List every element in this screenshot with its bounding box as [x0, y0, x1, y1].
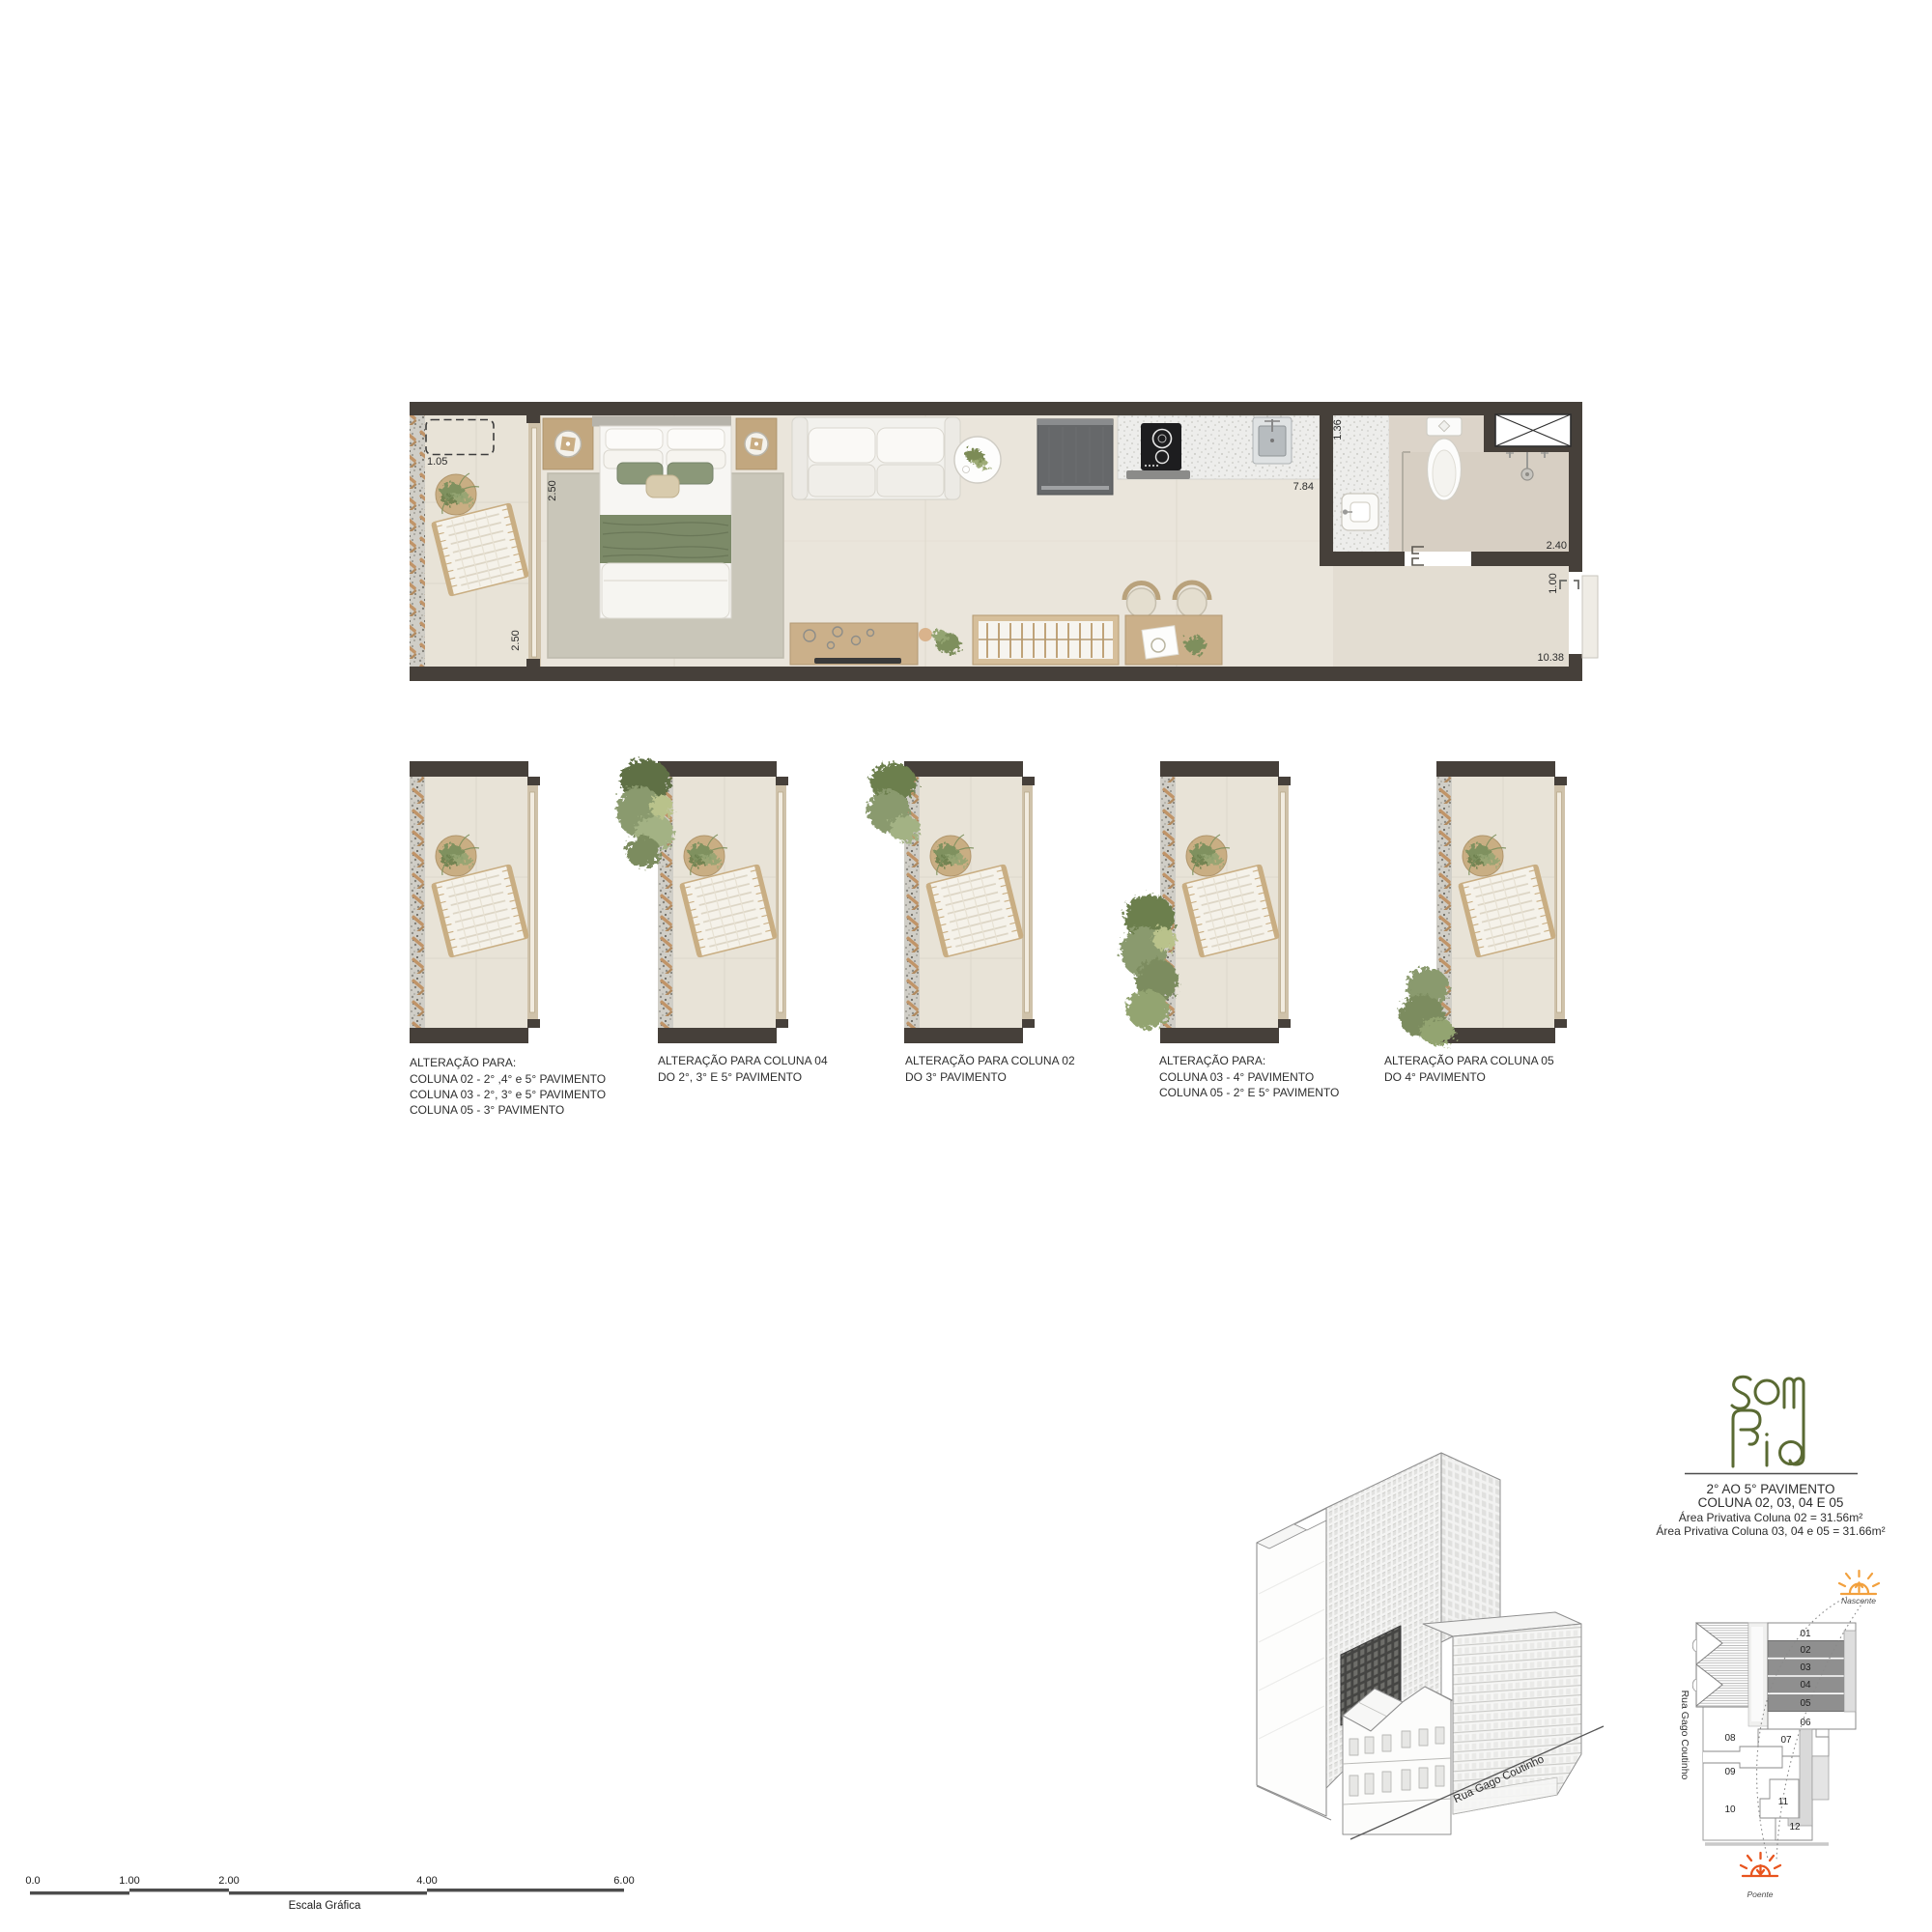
svg-text:COLUNA 05 - 2° E 5° PAVIMENTO: COLUNA 05 - 2° E 5° PAVIMENTO — [1159, 1086, 1339, 1099]
svg-text:7.84: 7.84 — [1293, 481, 1314, 493]
svg-text:1.36: 1.36 — [1332, 419, 1344, 440]
svg-text:2.40: 2.40 — [1547, 540, 1567, 552]
svg-text:COLUNA 03 - 2°, 3° e 5° PAVIME: COLUNA 03 - 2°, 3° e 5° PAVIMENTO — [410, 1088, 606, 1101]
svg-text:01: 01 — [1800, 1629, 1811, 1639]
svg-text:ALTERAÇÃO PARA COLUNA 04: ALTERAÇÃO PARA COLUNA 04 — [658, 1054, 828, 1067]
svg-text:1.00: 1.00 — [1548, 573, 1559, 593]
svg-text:2.50: 2.50 — [547, 480, 558, 500]
svg-text:09: 09 — [1724, 1767, 1736, 1777]
svg-text:12: 12 — [1789, 1822, 1801, 1833]
svg-text:4.00: 4.00 — [416, 1875, 437, 1887]
svg-text:04: 04 — [1800, 1680, 1811, 1690]
svg-text:2.00: 2.00 — [218, 1875, 239, 1887]
svg-text:05: 05 — [1800, 1698, 1811, 1709]
svg-text:Nascente: Nascente — [1841, 1596, 1876, 1605]
svg-text:Escala Gráfica: Escala Gráfica — [289, 1900, 361, 1912]
svg-text:10: 10 — [1724, 1804, 1736, 1815]
svg-text:06: 06 — [1800, 1718, 1811, 1728]
svg-text:0.0: 0.0 — [25, 1875, 40, 1887]
svg-text:03: 03 — [1800, 1662, 1811, 1673]
svg-text:ALTERAÇÃO PARA:: ALTERAÇÃO PARA: — [1159, 1054, 1265, 1067]
svg-text:08: 08 — [1724, 1733, 1736, 1744]
svg-text:COLUNA 02, 03, 04 E 05: COLUNA 02, 03, 04 E 05 — [1698, 1495, 1844, 1510]
svg-text:2.50: 2.50 — [510, 630, 522, 650]
svg-text:Área Privativa Coluna 03, 04 e: Área Privativa Coluna 03, 04 e 05 = 31.6… — [1656, 1523, 1885, 1538]
svg-text:Área Privativa Coluna 02 = 31.: Área Privativa Coluna 02 = 31.56m² — [1679, 1510, 1862, 1524]
svg-text:Poente: Poente — [1747, 1889, 1774, 1899]
svg-text:COLUNA 05 - 3° PAVIMENTO: COLUNA 05 - 3° PAVIMENTO — [410, 1103, 564, 1117]
svg-text:6.00: 6.00 — [613, 1875, 634, 1887]
svg-text:DO 2°, 3° E 5° PAVIMENTO: DO 2°, 3° E 5° PAVIMENTO — [658, 1070, 802, 1084]
svg-text:10.38: 10.38 — [1537, 652, 1564, 664]
svg-text:1.05: 1.05 — [427, 456, 447, 468]
svg-text:02: 02 — [1800, 1645, 1811, 1656]
svg-text:Rua Gago Coutinho: Rua Gago Coutinho — [1679, 1690, 1690, 1780]
svg-text:COLUNA 03 - 4° PAVIMENTO: COLUNA 03 - 4° PAVIMENTO — [1159, 1070, 1314, 1084]
svg-text:DO 4° PAVIMENTO: DO 4° PAVIMENTO — [1384, 1070, 1486, 1084]
svg-text:07: 07 — [1780, 1735, 1792, 1746]
svg-text:2° AO 5° PAVIMENTO: 2° AO 5° PAVIMENTO — [1706, 1482, 1834, 1496]
svg-text:DO 3° PAVIMENTO: DO 3° PAVIMENTO — [905, 1070, 1007, 1084]
svg-text:ALTERAÇÃO PARA COLUNA 02: ALTERAÇÃO PARA COLUNA 02 — [905, 1054, 1075, 1067]
svg-text:ALTERAÇÃO PARA:: ALTERAÇÃO PARA: — [410, 1056, 516, 1069]
svg-text:COLUNA 02 - 2° ,4° e 5° PAVIME: COLUNA 02 - 2° ,4° e 5° PAVIMENTO — [410, 1072, 606, 1086]
svg-text:ALTERAÇÃO PARA COLUNA 05: ALTERAÇÃO PARA COLUNA 05 — [1384, 1054, 1554, 1067]
svg-text:1.00: 1.00 — [119, 1875, 139, 1887]
